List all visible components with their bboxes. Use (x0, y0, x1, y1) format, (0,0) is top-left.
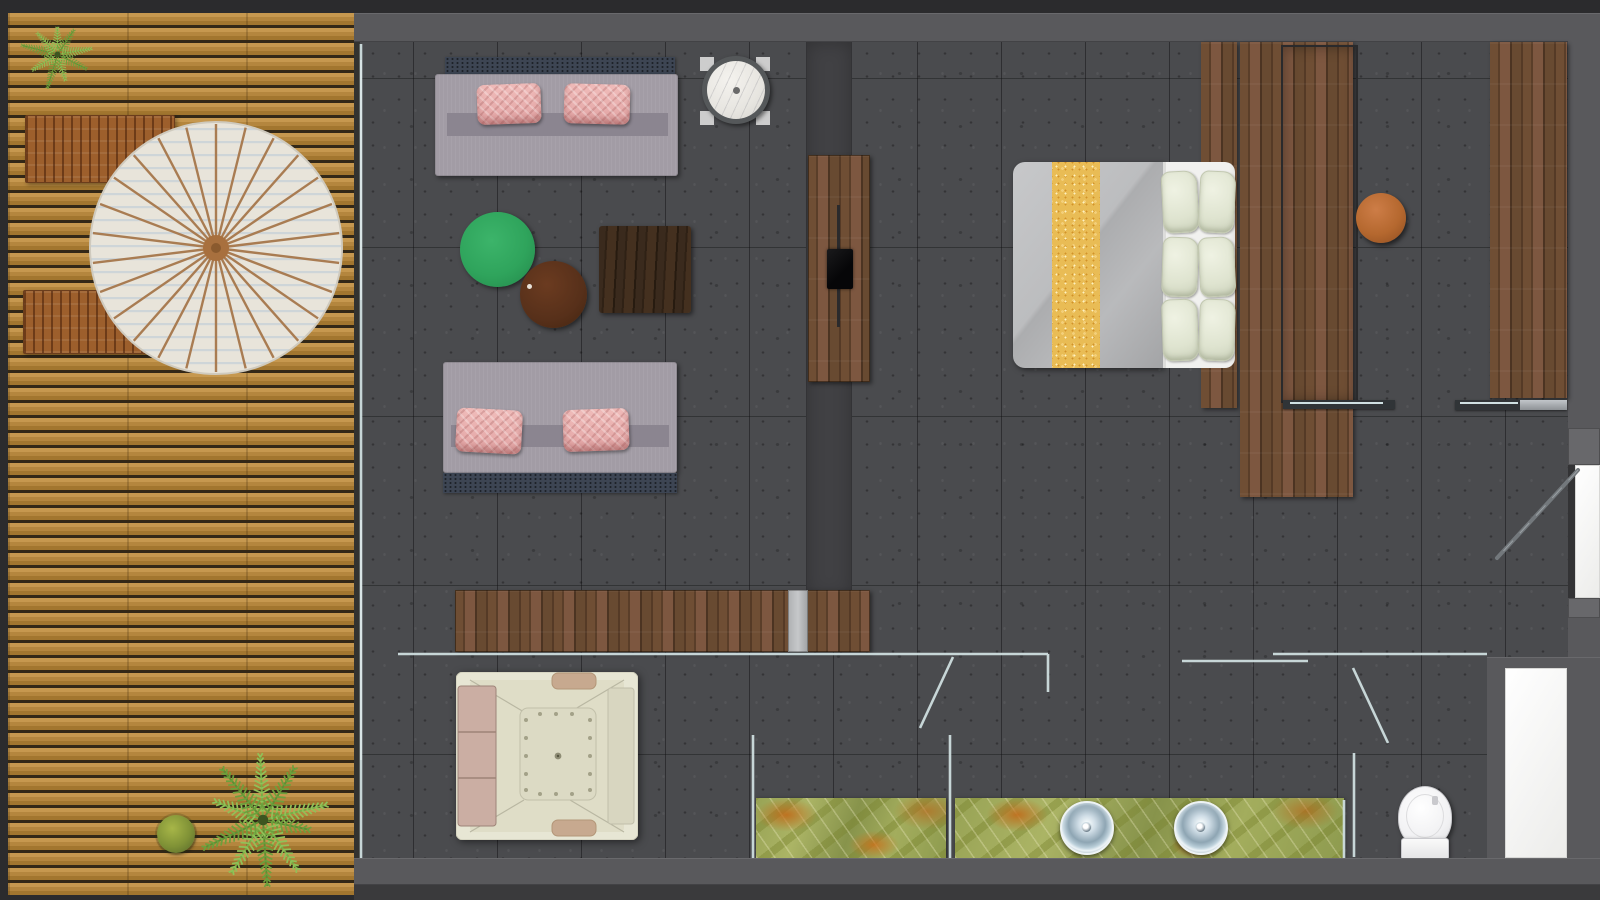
plant-shrub (157, 815, 195, 853)
plant-fern-bottom (188, 745, 338, 899)
plant-fern-top (15, 12, 100, 101)
floor-plan (0, 0, 1600, 900)
